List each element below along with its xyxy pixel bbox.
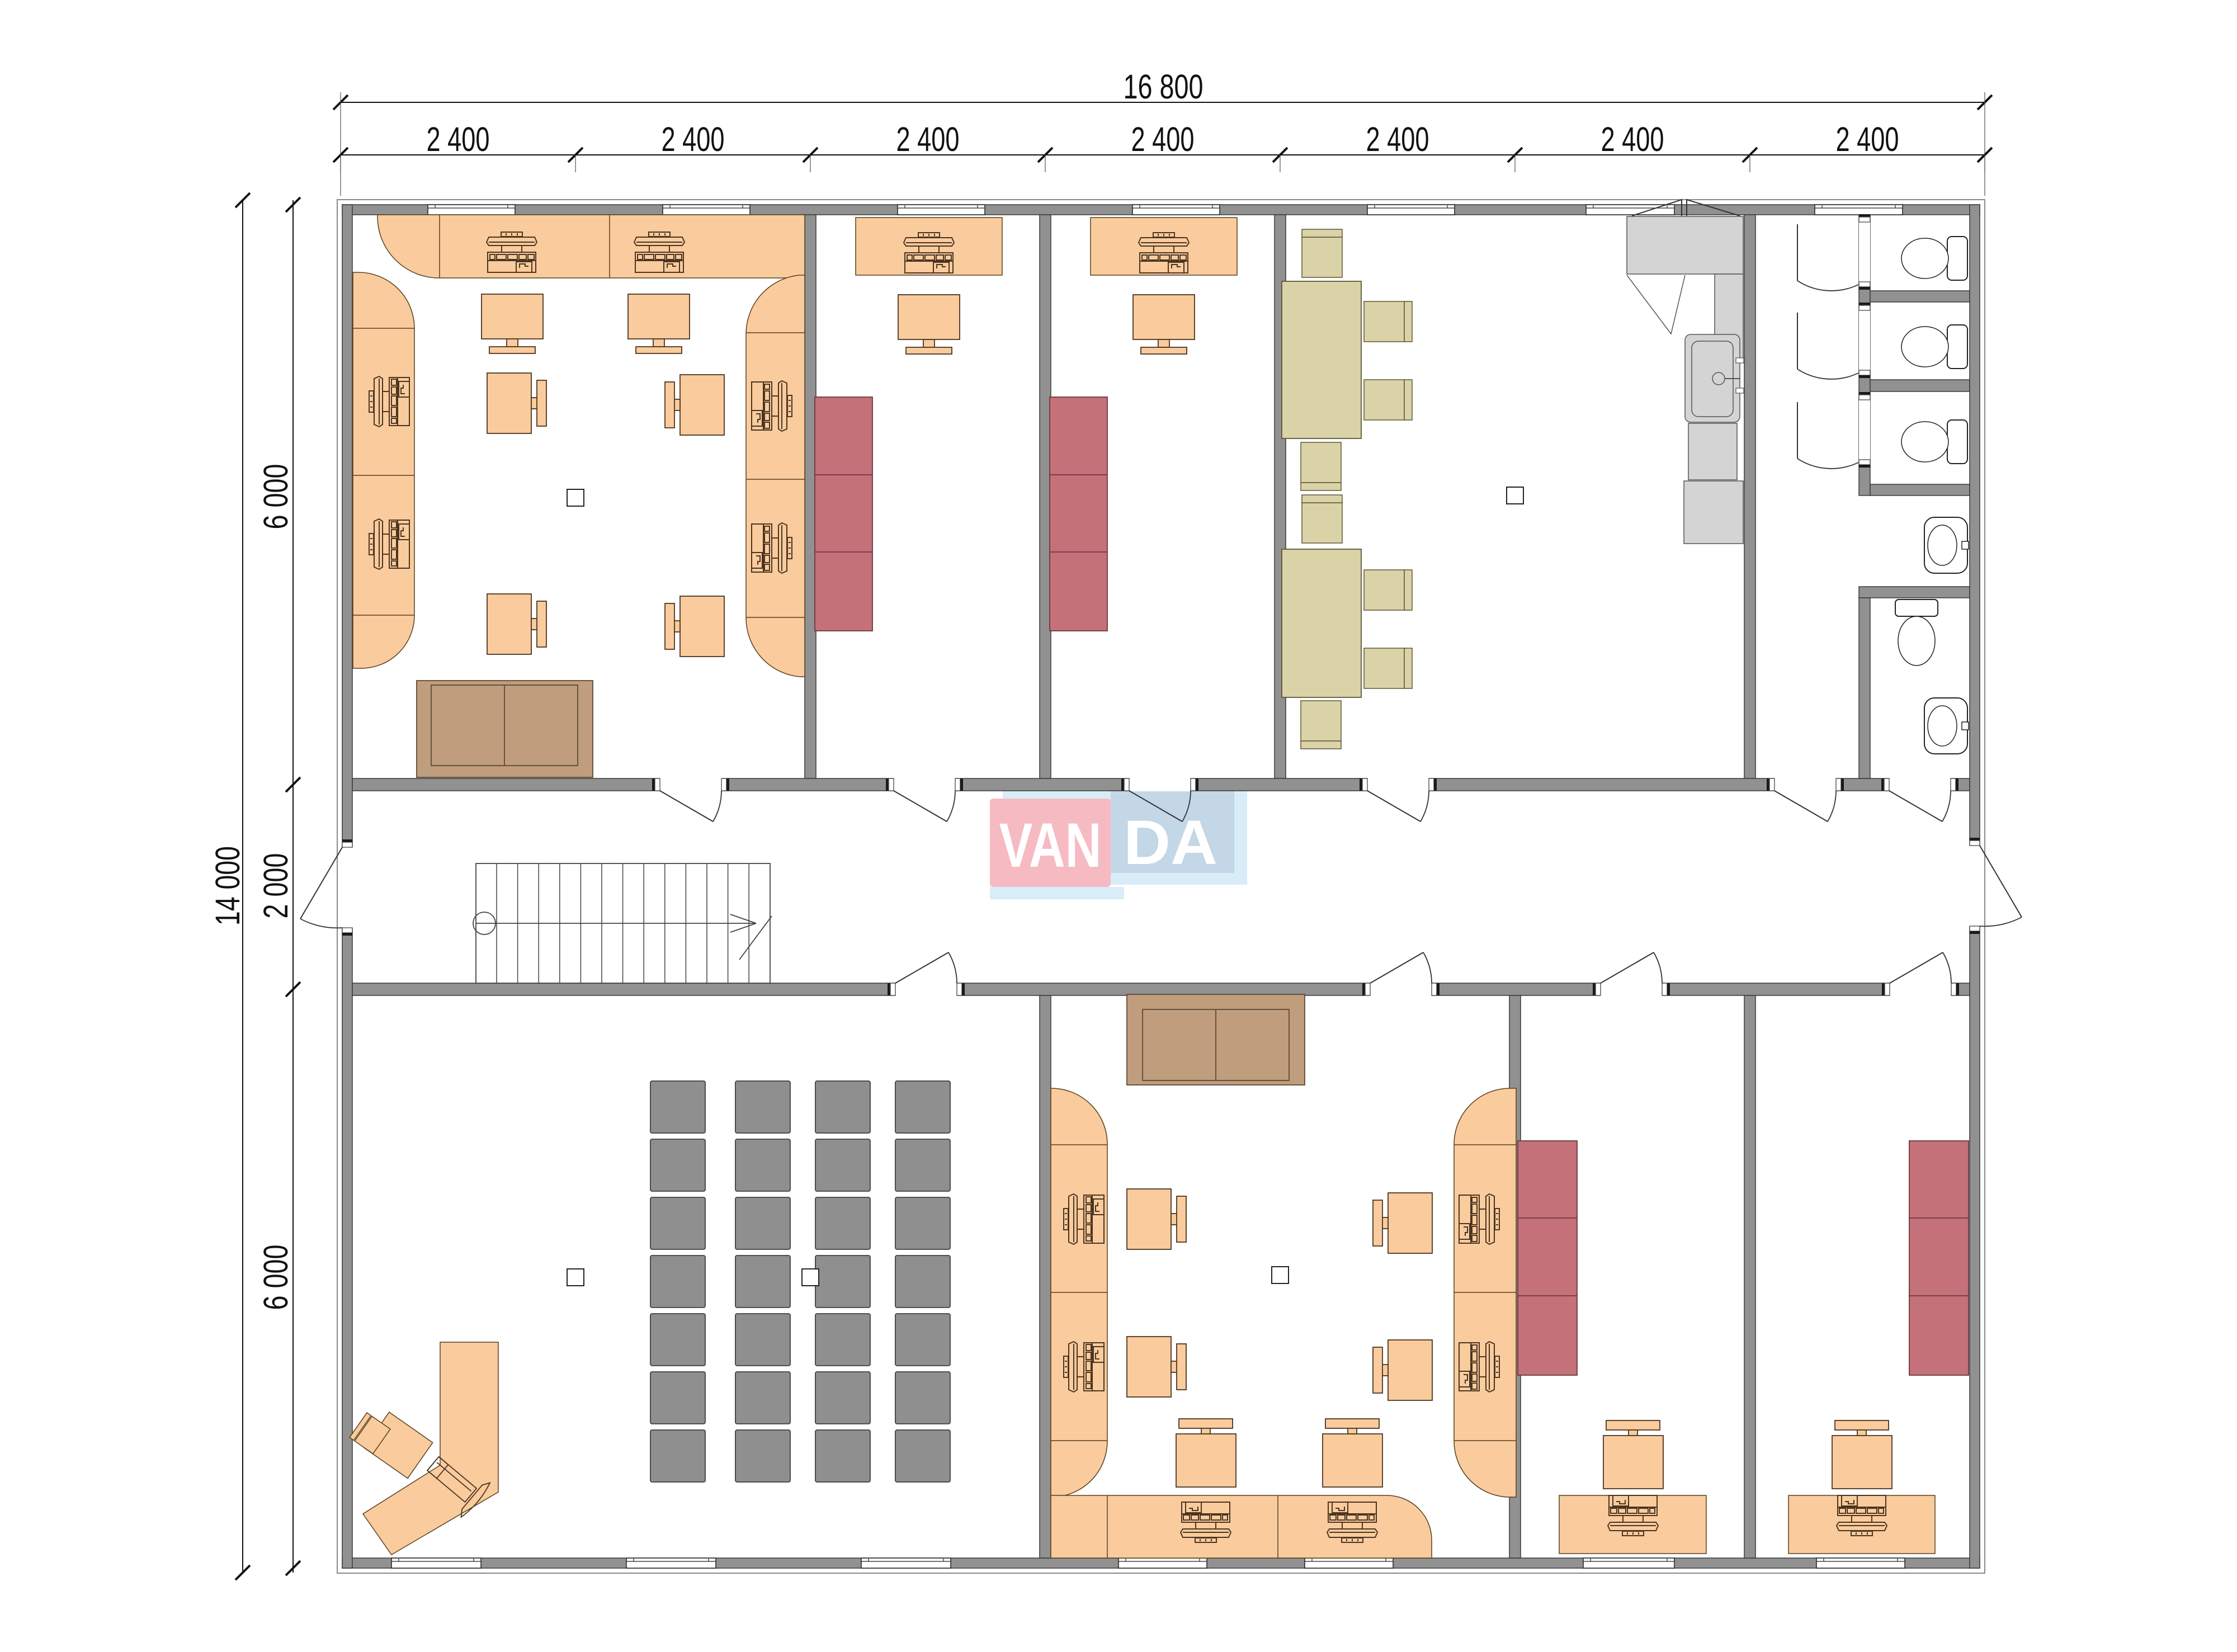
svg-text:6 000: 6 000 [257, 1245, 295, 1310]
svg-text:2 400: 2 400 [427, 120, 490, 158]
svg-text:2 400: 2 400 [1836, 120, 1899, 158]
svg-text:6 000: 6 000 [257, 464, 295, 530]
svg-text:16 800: 16 800 [1124, 68, 1204, 106]
svg-text:2 400: 2 400 [1131, 120, 1195, 158]
svg-text:2 400: 2 400 [896, 120, 960, 158]
svg-text:DA: DA [1124, 808, 1217, 877]
svg-text:2 400: 2 400 [662, 120, 725, 158]
svg-text:VAN: VAN [999, 810, 1102, 880]
svg-text:14 000: 14 000 [209, 846, 247, 926]
svg-text:2 400: 2 400 [1601, 120, 1664, 158]
svg-text:2 400: 2 400 [1366, 120, 1429, 158]
svg-text:2 000: 2 000 [257, 853, 295, 919]
